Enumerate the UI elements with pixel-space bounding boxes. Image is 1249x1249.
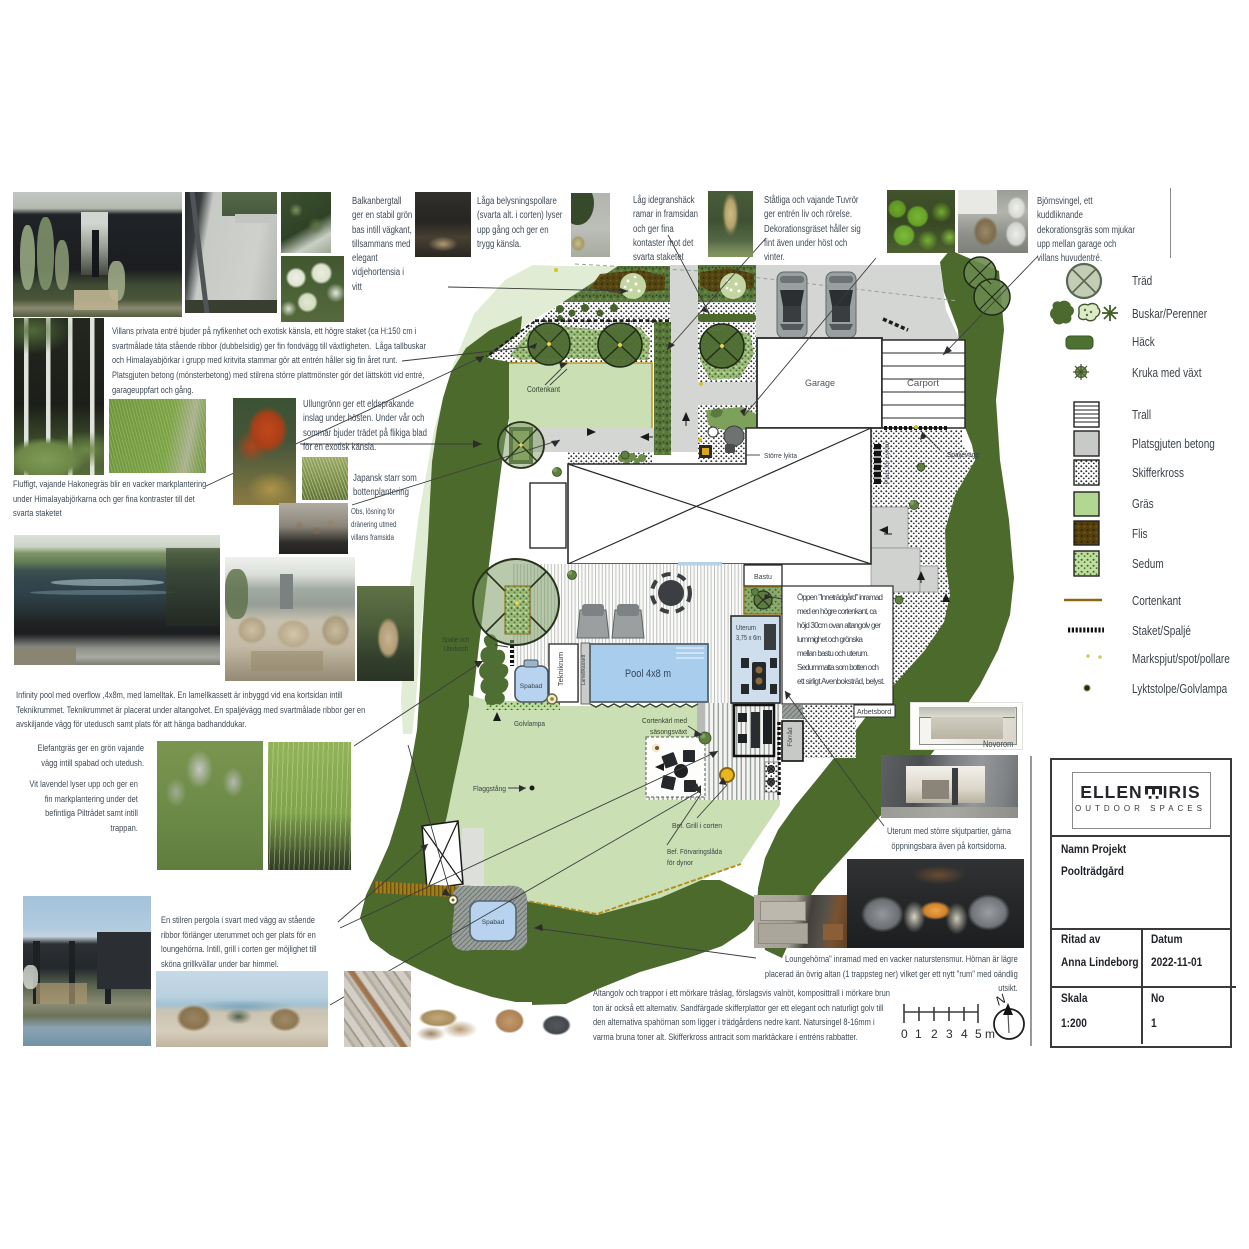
svg-text:säsongsväxt: säsongsväxt bbox=[650, 727, 688, 736]
svg-text:012345m: 012345m bbox=[901, 1027, 995, 1041]
svg-text:Pool 4x8 m: Pool 4x8 m bbox=[625, 668, 671, 680]
svg-text:Cortenkärl med: Cortenkärl med bbox=[642, 716, 687, 725]
svg-text:Spabad: Spabad bbox=[520, 683, 543, 690]
svg-text:för dynor: för dynor bbox=[667, 858, 693, 867]
svg-text:Teknikrum: Teknikrum bbox=[556, 652, 565, 686]
svg-text:Bef. Förvaringslåda: Bef. Förvaringslåda bbox=[667, 847, 723, 856]
svg-text:Flaggstång: Flaggstång bbox=[473, 784, 506, 793]
svg-text:Lamellkassett: Lamellkassett bbox=[581, 654, 587, 685]
svg-text:Förråd: Förråd bbox=[786, 727, 794, 747]
svg-text:Utedusch: Utedusch bbox=[444, 646, 468, 653]
svg-text:Arbetsbord: Arbetsbord bbox=[857, 709, 891, 716]
svg-text:Uterum: Uterum bbox=[736, 625, 756, 632]
svg-text:Cortenkant: Cortenkant bbox=[527, 385, 561, 394]
svg-text:Carport: Carport bbox=[907, 378, 939, 389]
svg-text:Garage: Garage bbox=[805, 378, 835, 389]
svg-text:3,75 x 6m: 3,75 x 6m bbox=[736, 635, 761, 642]
svg-text:Större lykta: Större lykta bbox=[764, 451, 798, 460]
svg-text:Bastu: Bastu bbox=[754, 574, 772, 581]
svg-text:Spaljevägg: Spaljevägg bbox=[947, 450, 979, 459]
svg-text:Plats för cyklar: Plats för cyklar bbox=[884, 441, 891, 484]
svg-text:Spalje och: Spalje och bbox=[442, 637, 469, 644]
svg-text:Golvlampa: Golvlampa bbox=[514, 719, 546, 728]
svg-text:Spabad: Spabad bbox=[482, 919, 505, 926]
